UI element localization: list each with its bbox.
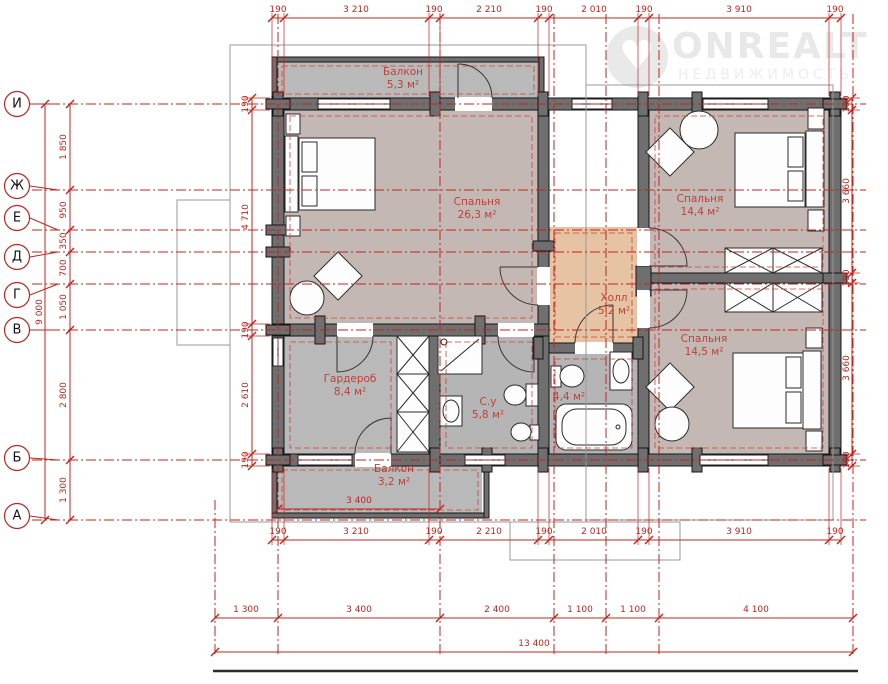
axis-label-i: И bbox=[12, 97, 22, 112]
dim-label: 1 300 bbox=[233, 605, 259, 615]
dim-label: 4 100 bbox=[743, 605, 769, 615]
room-label-bedroom-main: Спальня26,3 м² bbox=[454, 196, 501, 222]
dim-label: 3 660 bbox=[842, 355, 852, 381]
dim-label: 190 bbox=[842, 95, 852, 112]
dim-label: 190 bbox=[241, 321, 251, 338]
dim-label: 4 710 bbox=[241, 204, 251, 230]
dim-label: 1 100 bbox=[620, 605, 646, 615]
room-label-bathroom-small: 4,4 м² bbox=[553, 391, 585, 404]
dim-label: 190 bbox=[635, 527, 652, 537]
dim-label: 1 050 bbox=[59, 294, 69, 320]
dim-label: 1 850 bbox=[59, 134, 69, 160]
room-label-balcony-top: Балкон5,3 м² bbox=[383, 66, 423, 92]
dim-label: 190 bbox=[826, 527, 843, 537]
room-label-bathroom: С.у5,8 м² bbox=[472, 396, 504, 422]
room-label-bedroom-right-bottom: Спальня14,5 м² bbox=[681, 333, 728, 359]
axis-label-e: Е bbox=[13, 211, 21, 226]
dim-label: 190 bbox=[842, 269, 852, 286]
dim-label: 2 400 bbox=[484, 605, 510, 615]
room-label-wardrobe: Гардероб8,4 м² bbox=[324, 373, 377, 399]
dim-label: 1 300 bbox=[59, 477, 69, 503]
dim-label: 2 210 bbox=[476, 5, 502, 15]
dim-label: 3 400 bbox=[346, 605, 372, 615]
dim-label: 190 bbox=[826, 5, 843, 15]
dim-label: 3 910 bbox=[726, 5, 752, 15]
dim-label: 2 610 bbox=[241, 382, 251, 408]
dim-label: 3 660 bbox=[842, 178, 852, 204]
room-label-bedroom-right-top: Спальня14,4 м² bbox=[677, 193, 724, 219]
room-label-balcony-bottom: Балкон3,2 м² bbox=[374, 463, 414, 489]
dim-label: 2 210 bbox=[476, 527, 502, 537]
dim-label: 190 bbox=[425, 527, 442, 537]
dim-label: 190 bbox=[635, 5, 652, 15]
dim-label: 2 010 bbox=[581, 527, 607, 537]
dim-label: 190 bbox=[535, 5, 552, 15]
dim-label: 3 400 bbox=[346, 496, 372, 506]
room-label-hall: Холл5,2 м² bbox=[598, 292, 630, 318]
dim-label: 3 210 bbox=[343, 5, 369, 15]
dim-label: 190 bbox=[241, 95, 251, 112]
axis-label-g: Г bbox=[13, 288, 21, 303]
dim-label: 950 bbox=[59, 201, 69, 218]
dim-label: 13 400 bbox=[518, 639, 550, 649]
plan-drawing bbox=[0, 0, 888, 684]
dim-label: 190 bbox=[241, 451, 251, 468]
dim-label: 190 bbox=[425, 5, 442, 15]
dim-label: 9 000 bbox=[35, 299, 45, 325]
dim-label: 2 800 bbox=[59, 382, 69, 408]
axis-label-b: Б bbox=[13, 451, 22, 466]
dim-label: 350 bbox=[59, 232, 69, 249]
dim-label: 3 210 bbox=[343, 527, 369, 537]
axis-label-d: Д bbox=[12, 250, 22, 265]
dim-label: 3 910 bbox=[726, 527, 752, 537]
floor-plan: ONREALT НЕДВИЖИМОСТЬ ♥ bbox=[0, 0, 888, 684]
axis-label-v: В bbox=[13, 323, 22, 338]
dim-label: 190 bbox=[535, 527, 552, 537]
dim-label: 190 bbox=[269, 5, 286, 15]
dim-label: 190 bbox=[842, 451, 852, 468]
dim-label: 2 010 bbox=[581, 5, 607, 15]
dim-label: 700 bbox=[59, 259, 69, 276]
dim-label: 1 100 bbox=[567, 605, 593, 615]
axis-label-zh: Ж bbox=[10, 179, 24, 194]
axis-label-a: А bbox=[13, 509, 22, 524]
dim-label: 190 bbox=[269, 527, 286, 537]
